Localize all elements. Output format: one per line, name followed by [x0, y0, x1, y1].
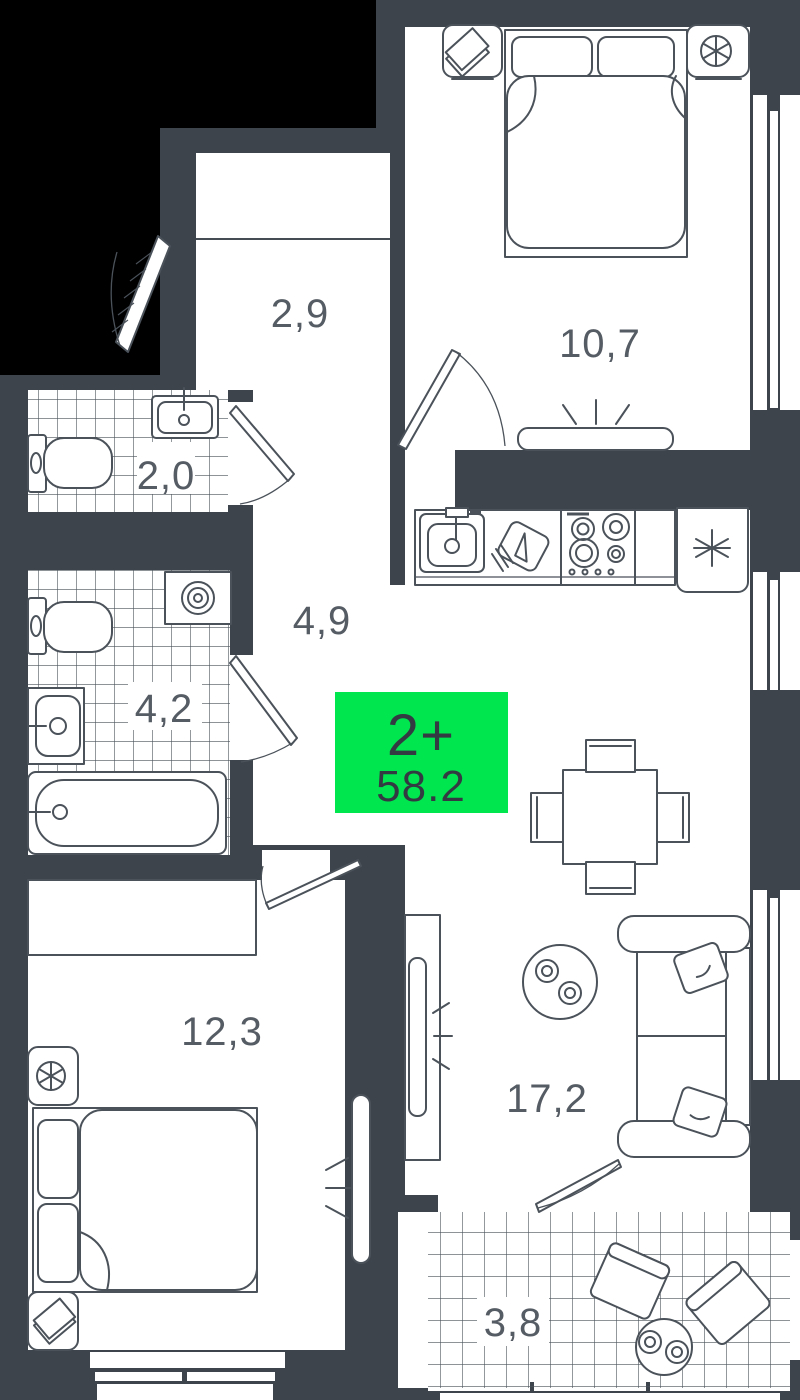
- room-label-balcony: 3,8: [484, 1301, 543, 1345]
- window-glass: [780, 572, 800, 690]
- window-glass: [780, 95, 800, 410]
- washing-machine: [165, 572, 231, 624]
- toilet-bowl: [44, 602, 112, 652]
- room-label-bedroom-bottom: 12,3: [181, 1010, 263, 1054]
- faucet: [446, 508, 468, 517]
- nightstand: [28, 1047, 78, 1105]
- window-glass: [780, 890, 800, 1080]
- room-label-living: 17,2: [506, 1077, 588, 1121]
- radiator: [518, 428, 673, 450]
- toilet-bowl: [44, 438, 112, 488]
- chair: [586, 740, 635, 772]
- bedroom-top-door-gap: [405, 443, 455, 513]
- floor-plan-svg: 10,7 2,0 4,2: [0, 0, 800, 1400]
- window-glass: [753, 890, 767, 1080]
- window-glass: [753, 572, 767, 690]
- kitchen: [415, 508, 748, 592]
- pillow: [38, 1204, 78, 1282]
- chair: [531, 793, 563, 842]
- window-glass: [770, 580, 778, 690]
- window-mullion: [182, 1372, 187, 1381]
- coffee-table: [523, 945, 597, 1019]
- room-label-entry-hall: 2,9: [271, 292, 330, 336]
- pillow: [38, 1120, 78, 1198]
- kitchen-sink: [420, 514, 484, 572]
- badge-rooms-count: 2+: [387, 703, 455, 768]
- window-glass: [770, 103, 778, 408]
- pillow: [598, 37, 674, 77]
- bathtub: [28, 772, 226, 854]
- radiator: [352, 1095, 370, 1263]
- balcony-sill: [440, 1393, 780, 1400]
- entry-niche: [196, 153, 390, 238]
- window-glass: [753, 95, 767, 410]
- toilet-button: [31, 453, 41, 473]
- toilet-button: [31, 616, 41, 636]
- room-label-bedroom-top: 10,7: [559, 322, 641, 366]
- bedroom-bottom-door-gap: [262, 850, 330, 880]
- badge-total-area: 58.2: [376, 762, 466, 811]
- tv-console: [405, 915, 440, 1160]
- chair: [586, 862, 635, 894]
- bedroom-window: [90, 1352, 285, 1368]
- blanket: [80, 1110, 257, 1290]
- balcony-window-left: [438, 1195, 530, 1212]
- wardrobe: [28, 880, 256, 955]
- balcony-table: [636, 1319, 692, 1375]
- room-label-hallway: 4,9: [293, 599, 352, 643]
- sofa-backrest: [726, 948, 750, 1125]
- dining-table: [563, 770, 657, 864]
- pillow: [512, 37, 592, 77]
- window-mullion: [768, 98, 780, 111]
- room-label-bathroom: 4,2: [135, 687, 194, 731]
- sofa-armrest: [618, 916, 750, 952]
- balcony-window-right: [625, 1195, 750, 1212]
- room-label-wc: 2,0: [137, 454, 196, 498]
- floor-plan: 10,7 2,0 4,2: [0, 0, 800, 1400]
- window-sill: [97, 1384, 273, 1400]
- area-badge: 2+ 58.2: [335, 692, 508, 813]
- chair: [657, 793, 689, 842]
- window-glass: [770, 898, 778, 1080]
